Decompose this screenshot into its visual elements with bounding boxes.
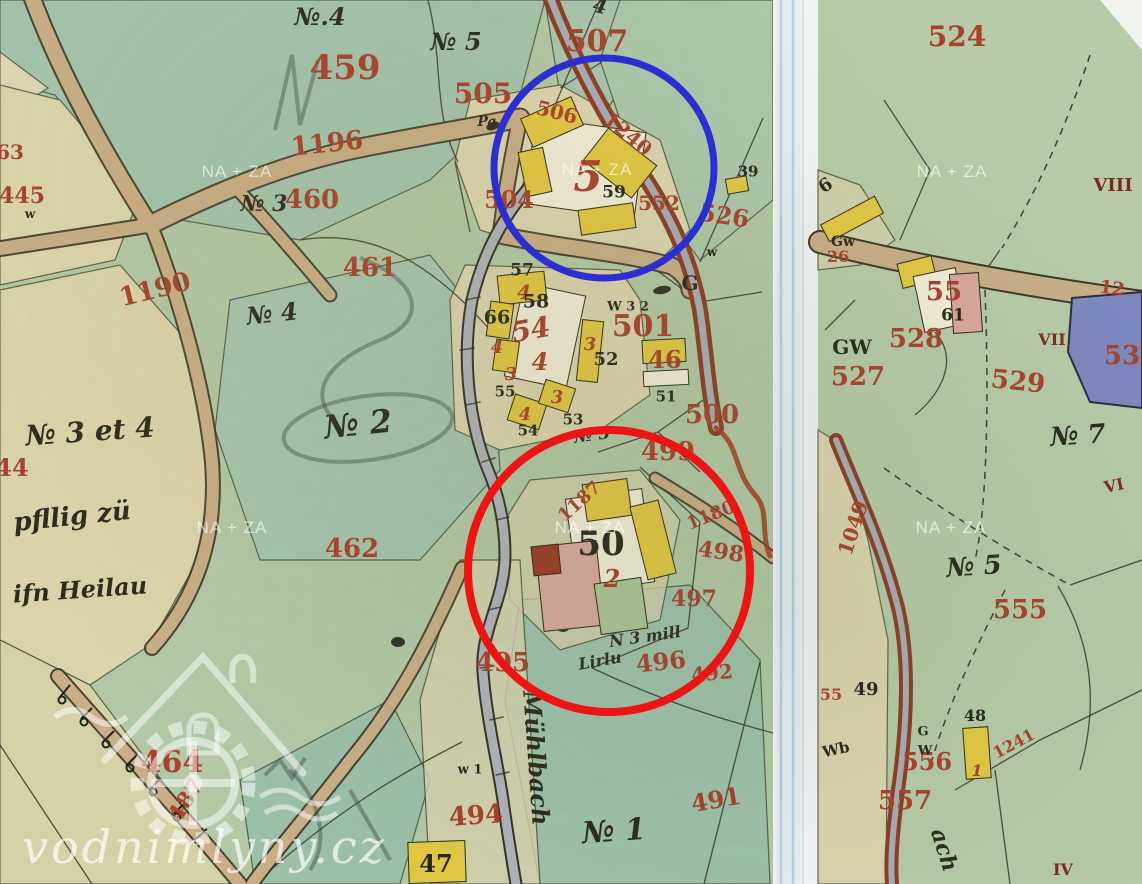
overlay-artwork (0, 0, 1142, 884)
red-circle-annotation (468, 430, 750, 712)
watermill-logo-icon (55, 657, 340, 839)
cadastral-map-screenshot: 4595075051196460461119063445444625061240… (0, 0, 1142, 884)
site-watermark-text: vodnimlyny.cz (22, 820, 387, 874)
blue-circle-annotation (494, 58, 714, 278)
